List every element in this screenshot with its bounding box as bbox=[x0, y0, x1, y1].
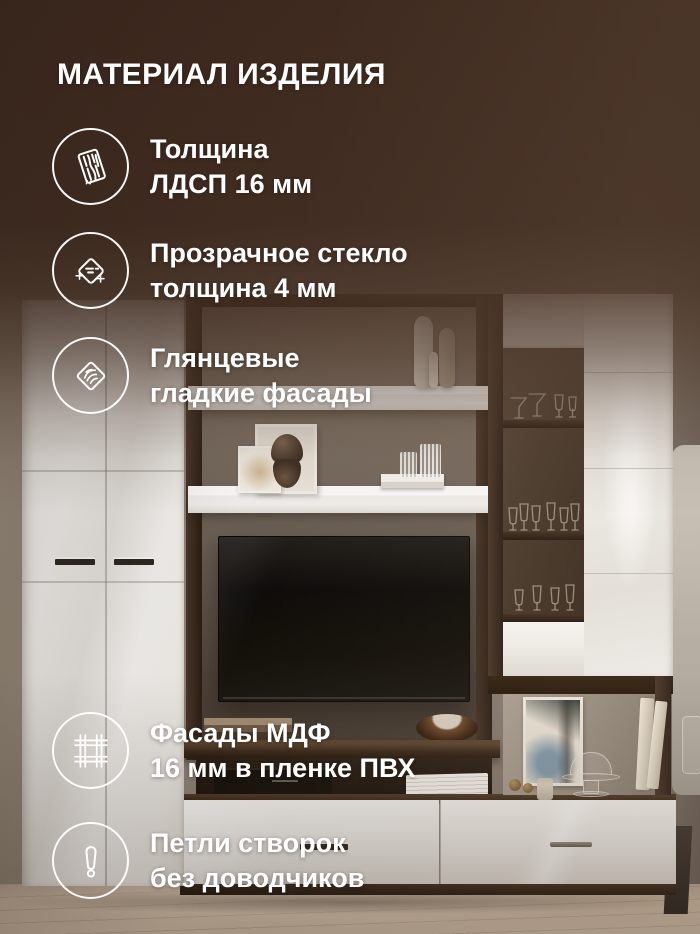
feature-text: Фасады МДФ 16 мм в пленке ПВХ bbox=[150, 716, 415, 785]
product-material-infographic: МАТЕРИАЛ ИЗДЕЛИЯ Толщина ЛДСП 16 мм bbox=[0, 0, 700, 934]
feature-line: без доводчиков bbox=[150, 861, 364, 895]
feature-mdf-pvc: Фасады МДФ 16 мм в пленке ПВХ bbox=[52, 712, 415, 789]
feature-text: Глянцевые гладкие фасады bbox=[150, 341, 372, 410]
glass-icon bbox=[52, 232, 129, 309]
feature-line: Петли створок bbox=[150, 826, 364, 860]
feature-line: Прозрачное стекло bbox=[150, 236, 408, 270]
page-title: МАТЕРИАЛ ИЗДЕЛИЯ bbox=[57, 58, 386, 92]
feature-line: Фасады МДФ bbox=[150, 716, 415, 750]
feature-line: толщина 4 мм bbox=[150, 271, 408, 305]
feature-text: Петли створок без доводчиков bbox=[150, 826, 364, 895]
feature-line: ЛДСП 16 мм bbox=[150, 167, 312, 201]
feature-line: Глянцевые bbox=[150, 341, 372, 375]
feature-line: 16 мм в пленке ПВХ bbox=[150, 751, 415, 785]
infographic-content: МАТЕРИАЛ ИЗДЕЛИЯ Толщина ЛДСП 16 мм bbox=[0, 0, 700, 934]
feature-line: гладкие фасады bbox=[150, 376, 372, 410]
feature-glossy-facade: Глянцевые гладкие фасады bbox=[52, 337, 372, 414]
feature-text: Толщина ЛДСП 16 мм bbox=[150, 132, 312, 201]
hinge-warning-icon bbox=[52, 822, 129, 899]
feature-glass: Прозрачное стекло толщина 4 мм bbox=[52, 232, 408, 309]
chipboard-icon bbox=[52, 128, 129, 205]
feature-line: Толщина bbox=[150, 132, 312, 166]
feature-hinges: Петли створок без доводчиков bbox=[52, 822, 364, 899]
feature-chipboard: Толщина ЛДСП 16 мм bbox=[52, 128, 312, 205]
mdf-pvc-icon bbox=[52, 712, 129, 789]
glossy-facade-icon bbox=[52, 337, 129, 414]
feature-text: Прозрачное стекло толщина 4 мм bbox=[150, 236, 408, 305]
